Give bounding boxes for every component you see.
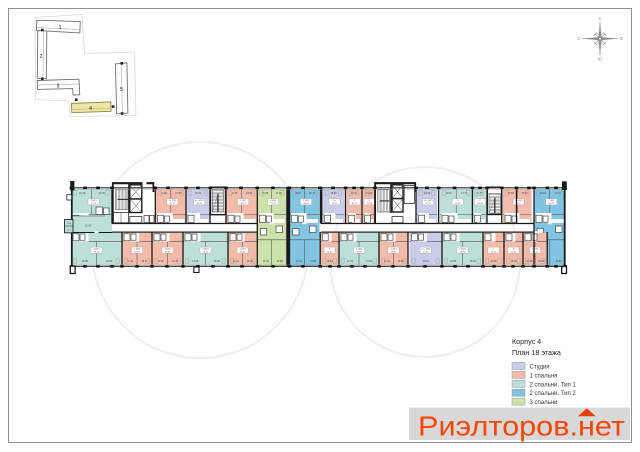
svg-text:77.12: 77.12 — [270, 203, 276, 205]
svg-text:41.17: 41.17 — [170, 203, 176, 205]
svg-text:1 (2У): 1 (2У) — [134, 249, 140, 251]
svg-text:1 (2У): 1 (2У) — [240, 200, 246, 202]
svg-text:3 (6У): 3 (6У) — [270, 200, 276, 202]
svg-text:1 спальня: 1 спальня — [530, 373, 558, 379]
svg-text:3 спальни: 3 спальни — [530, 400, 558, 406]
svg-text:15.20: 15.20 — [470, 260, 477, 263]
svg-text:16.30: 16.30 — [247, 260, 254, 263]
svg-text:2 (5У): 2 (5У) — [303, 200, 309, 202]
svg-text:56.90: 56.90 — [460, 252, 466, 254]
svg-text:18.80: 18.80 — [330, 192, 337, 195]
svg-text:Ст+ (3У): Ст+ (3У) — [422, 249, 431, 251]
svg-text:16.02: 16.02 — [157, 260, 164, 263]
svg-text:17.76: 17.76 — [554, 192, 561, 195]
svg-text:16.40: 16.40 — [214, 260, 221, 263]
svg-text:66.27: 66.27 — [549, 203, 555, 205]
svg-text:Ст+ (3У): Ст+ (3У) — [424, 200, 433, 202]
svg-text:5: 5 — [120, 87, 123, 93]
svg-text:16.16: 16.16 — [79, 192, 86, 195]
svg-text:14.60: 14.60 — [490, 260, 497, 263]
svg-text:11.21: 11.21 — [127, 260, 134, 263]
svg-text:15.96: 15.96 — [521, 192, 528, 195]
svg-text:57.04: 57.04 — [91, 203, 97, 205]
svg-text:16.27: 16.27 — [141, 260, 148, 263]
svg-text:11.15: 11.15 — [231, 192, 238, 195]
svg-text:68.40: 68.40 — [303, 203, 309, 205]
svg-text:13.05: 13.05 — [450, 260, 457, 263]
svg-text:56.51: 56.51 — [203, 252, 209, 254]
svg-text:15.70: 15.70 — [351, 192, 358, 195]
svg-text:21.06: 21.06 — [85, 225, 92, 228]
svg-text:16.90: 16.90 — [246, 192, 253, 195]
svg-text:36.88: 36.88 — [240, 252, 246, 254]
svg-text:43.05: 43.05 — [196, 203, 202, 205]
svg-text:34.20: 34.20 — [327, 252, 333, 254]
svg-text:14.86: 14.86 — [276, 192, 283, 195]
svg-text:42.31: 42.31 — [425, 203, 431, 205]
svg-text:12.79: 12.79 — [263, 260, 270, 263]
svg-text:2 спальни. Тип 1: 2 спальни. Тип 1 — [530, 382, 577, 388]
svg-text:14.00: 14.00 — [99, 192, 106, 195]
svg-text:2 (4У): 2 (4У) — [91, 200, 97, 202]
svg-text:10.95: 10.95 — [526, 260, 533, 263]
svg-text:14.22: 14.22 — [510, 260, 517, 263]
svg-text:16.85: 16.85 — [398, 260, 405, 263]
svg-text:2 (4У): 2 (4У) — [356, 249, 362, 251]
svg-text:С: С — [598, 16, 601, 21]
svg-text:2 (4У): 2 (4У) — [203, 249, 209, 251]
svg-text:Студия: Студия — [530, 365, 550, 371]
svg-text:38.21: 38.21 — [240, 203, 246, 205]
svg-text:Корпус 4: Корпус 4 — [512, 337, 541, 346]
svg-text:43.05: 43.05 — [423, 252, 429, 254]
svg-text:12.70: 12.70 — [461, 192, 468, 195]
svg-text:Ст+ (3У): Ст+ (3У) — [195, 200, 204, 202]
svg-text:55.80: 55.80 — [455, 203, 461, 205]
svg-text:55.63: 55.63 — [356, 252, 362, 254]
svg-text:12.76: 12.76 — [347, 260, 354, 263]
svg-text:36.12: 36.12 — [532, 252, 538, 254]
svg-text:38.05: 38.05 — [391, 252, 397, 254]
svg-text:33.54: 33.54 — [511, 252, 517, 254]
svg-text:2 (4У): 2 (4У) — [94, 249, 100, 251]
svg-text:2 (5У): 2 (5У) — [548, 200, 554, 202]
svg-text:1 (2У): 1 (2У) — [240, 249, 246, 251]
svg-text:3: 3 — [56, 84, 59, 90]
svg-text:15.43: 15.43 — [538, 260, 545, 263]
svg-text:1 (2У): 1 (2У) — [532, 249, 538, 251]
svg-text:14.90: 14.90 — [366, 260, 373, 263]
svg-text:4: 4 — [89, 106, 92, 112]
svg-text:2 (4У): 2 (4У) — [460, 249, 466, 251]
svg-text:35.17: 35.17 — [352, 203, 358, 205]
svg-text:План 18 этажа: План 18 этажа — [512, 348, 561, 357]
svg-text:2: 2 — [39, 54, 42, 60]
svg-text:14.08: 14.08 — [366, 192, 373, 195]
svg-text:20.08: 20.08 — [424, 192, 431, 195]
svg-text:15.40: 15.40 — [106, 260, 113, 263]
svg-text:14.86: 14.86 — [555, 260, 562, 263]
svg-text:20.15: 20.15 — [423, 260, 430, 263]
svg-text:1+ (2У): 1+ (2У) — [169, 200, 176, 202]
svg-text:1: 1 — [58, 25, 61, 31]
svg-text:12.75: 12.75 — [476, 192, 483, 195]
svg-text:14.86: 14.86 — [310, 260, 317, 263]
svg-text:1 (2У): 1 (2У) — [165, 249, 171, 251]
svg-text:1 (2У): 1 (2У) — [391, 249, 397, 251]
svg-text:11.96: 11.96 — [161, 192, 168, 195]
svg-text:16.22: 16.22 — [294, 192, 301, 195]
svg-text:12.03: 12.03 — [539, 192, 546, 195]
svg-text:14.48: 14.48 — [192, 260, 199, 263]
svg-text:37.44: 37.44 — [134, 252, 140, 254]
svg-text:58.15: 58.15 — [94, 252, 100, 254]
svg-text:2 спальни. Тип 2: 2 спальни. Тип 2 — [530, 391, 577, 397]
svg-text:28.54: 28.54 — [332, 203, 338, 205]
svg-text:14.86: 14.86 — [277, 260, 284, 263]
svg-text:15.75: 15.75 — [309, 192, 316, 195]
svg-text:17.85: 17.85 — [175, 192, 182, 195]
svg-text:32.90: 32.90 — [367, 203, 373, 205]
svg-text:19.92: 19.92 — [195, 192, 202, 195]
svg-text:11.48: 11.48 — [172, 260, 179, 263]
svg-text:33.54: 33.54 — [491, 252, 497, 254]
svg-text:15.82: 15.82 — [326, 260, 333, 263]
svg-text:В: В — [620, 36, 623, 41]
svg-text:37.44: 37.44 — [165, 252, 171, 254]
svg-text:16.90: 16.90 — [82, 260, 89, 263]
svg-text:10.10: 10.10 — [446, 192, 453, 195]
svg-text:54.92: 54.92 — [477, 203, 483, 205]
svg-text:12.79: 12.79 — [295, 260, 302, 263]
